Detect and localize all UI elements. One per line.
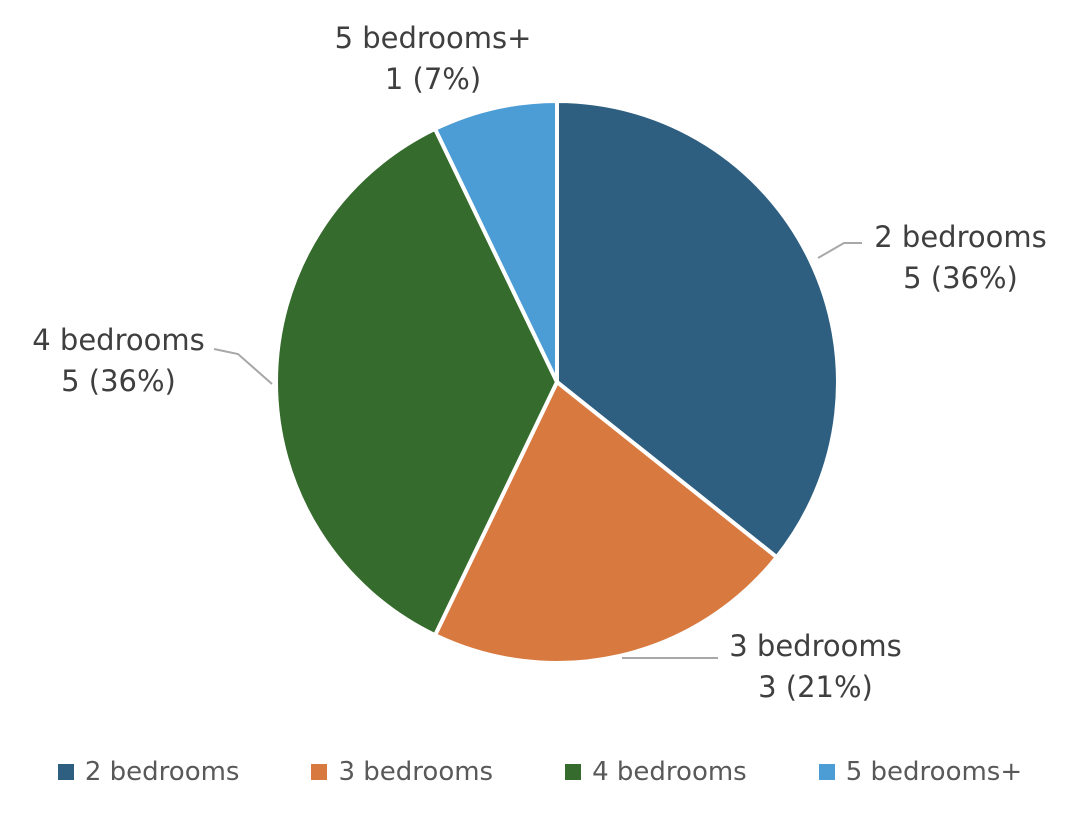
legend-item-4-bedrooms: 4 bedrooms bbox=[565, 757, 747, 787]
pie-chart: 5 bedrooms+ 1 (7%) 2 bedrooms 5 (36%) 3 … bbox=[0, 0, 1080, 821]
legend-label: 2 bedrooms bbox=[85, 757, 240, 787]
legend: 2 bedrooms 3 bedrooms 4 bedrooms 5 bedro… bbox=[0, 757, 1080, 787]
pie-svg bbox=[0, 0, 1080, 821]
pie-group bbox=[276, 101, 838, 663]
callout-value: 5 (36%) bbox=[16, 361, 221, 402]
callout-2-bedrooms: 2 bedrooms 5 (36%) bbox=[858, 217, 1063, 299]
callout-label: 2 bedrooms bbox=[874, 220, 1046, 254]
callout-value: 5 (36%) bbox=[858, 258, 1063, 299]
legend-label: 4 bedrooms bbox=[592, 757, 747, 787]
legend-marker-icon bbox=[819, 764, 835, 780]
legend-marker-icon bbox=[58, 764, 74, 780]
callout-label: 4 bedrooms bbox=[32, 323, 204, 357]
callout-3-bedrooms: 3 bedrooms 3 (21%) bbox=[713, 626, 918, 708]
legend-marker-icon bbox=[311, 764, 327, 780]
callout-value: 1 (7%) bbox=[318, 59, 548, 100]
callout-label: 5 bedrooms+ bbox=[335, 21, 532, 55]
legend-label: 5 bedrooms+ bbox=[846, 757, 1022, 787]
callout-value: 3 (21%) bbox=[713, 667, 918, 708]
callout-4-bedrooms: 4 bedrooms 5 (36%) bbox=[16, 320, 221, 402]
legend-marker-icon bbox=[565, 764, 581, 780]
callout-5-bedrooms-plus: 5 bedrooms+ 1 (7%) bbox=[318, 18, 548, 100]
callout-label: 3 bedrooms bbox=[729, 629, 901, 663]
legend-item-3-bedrooms: 3 bedrooms bbox=[311, 757, 493, 787]
legend-item-5-bedrooms-plus: 5 bedrooms+ bbox=[819, 757, 1022, 787]
leader-line-4-bedrooms bbox=[214, 349, 272, 384]
legend-item-2-bedrooms: 2 bedrooms bbox=[58, 757, 240, 787]
leader-line-2-bedrooms bbox=[818, 243, 862, 258]
legend-label: 3 bedrooms bbox=[338, 757, 493, 787]
